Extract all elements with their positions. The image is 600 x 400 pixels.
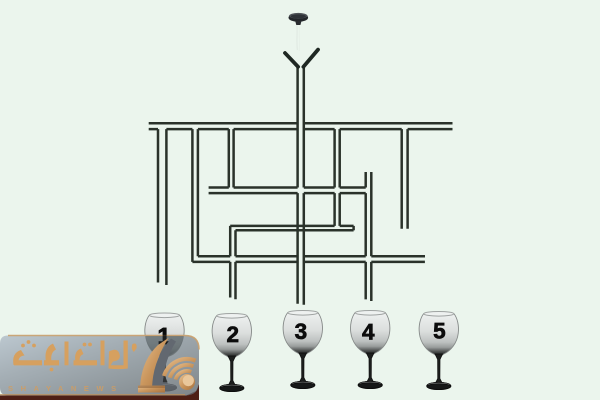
svg-text:3: 3 [295, 319, 308, 344]
svg-text:4: 4 [362, 319, 375, 344]
svg-text:5: 5 [433, 319, 446, 344]
svg-text:2: 2 [226, 322, 239, 347]
svg-text:SHAYANEWS: SHAYANEWS [8, 384, 124, 393]
